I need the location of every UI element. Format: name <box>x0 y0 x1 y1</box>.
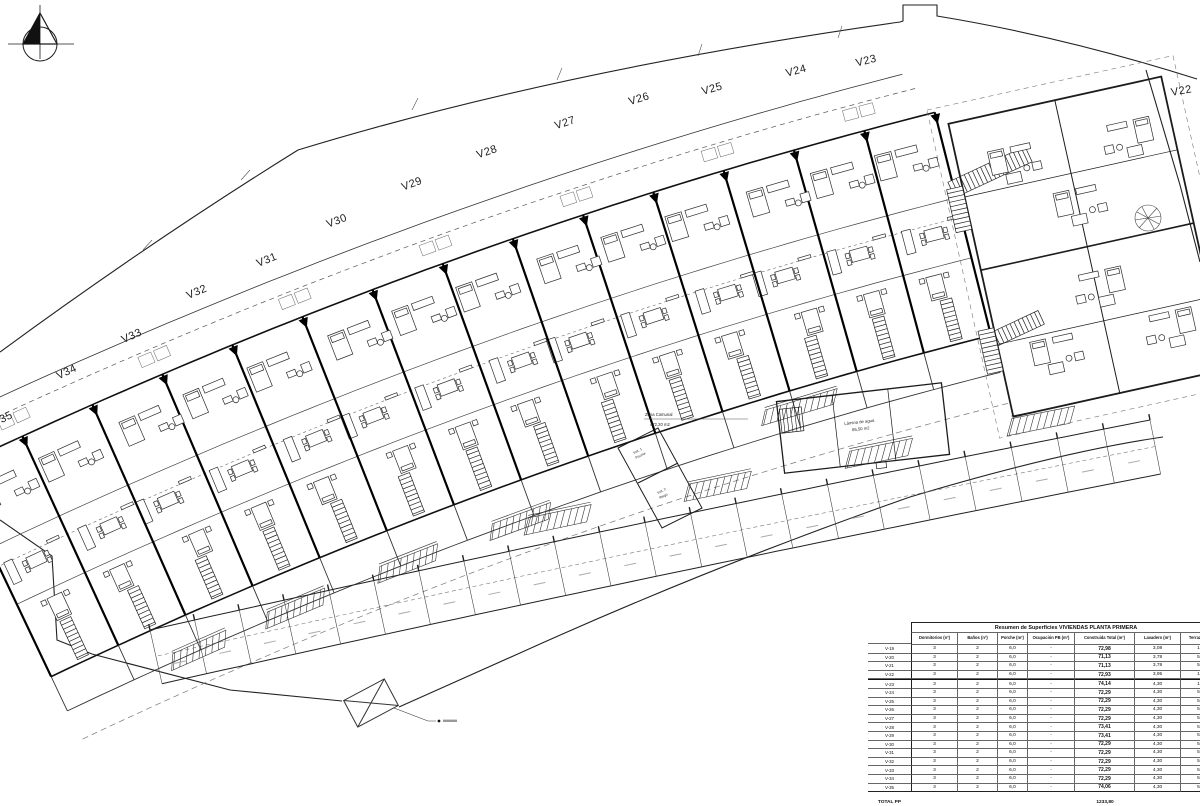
table-cell-dorm: 3 <box>911 749 958 758</box>
table-cell-porche: 6,0 <box>998 741 1028 750</box>
table-cell-banos: 2 <box>958 654 998 663</box>
table-title: Resumen de Superficies VIVIENDAS PLANTA … <box>911 622 1200 632</box>
unit-label-v33: V33 <box>120 326 144 346</box>
table-cell-lavadero: 3,78 <box>1135 662 1181 671</box>
table-cell-porche: 6,0 <box>998 689 1028 698</box>
table-cell-dorm: 3 <box>911 758 958 767</box>
table-cell-construida: 72,98 <box>1075 645 1135 654</box>
table-cell-banos: 2 <box>958 671 998 680</box>
row-unit-id: V-24 <box>868 689 911 698</box>
table-cell-terraza: 5,1 <box>1181 698 1200 707</box>
table-cell-dorm: 3 <box>911 645 958 654</box>
unit-label-v22: V22 <box>1170 83 1193 98</box>
table-cell-lavadero: 4,30 <box>1135 758 1181 767</box>
table-cell-ocupacion: - <box>1028 732 1075 741</box>
table-cell-lavadero: 4,30 <box>1135 679 1181 689</box>
table-cell-terraza: 10, <box>1181 645 1200 654</box>
table-cell-construida: 71,13 <box>1075 662 1135 671</box>
table-cell-lavadero: 3,78 <box>1135 654 1181 663</box>
col-header: Ocupación PB (m²) <box>1028 632 1075 645</box>
unit-label-v27: V27 <box>553 114 577 132</box>
row-unit-id: V-20 <box>868 654 911 663</box>
unit-label-v31: V31 <box>255 251 279 270</box>
row-unit-id: V-34 <box>868 775 911 784</box>
table-cell-dorm: 3 <box>911 679 958 689</box>
table-cell-lavadero: 3,08 <box>1135 645 1181 654</box>
table-cell-terraza: 5,1 <box>1181 715 1200 724</box>
table-cell-lavadero: 4,30 <box>1135 741 1181 750</box>
row-unit-id: V-19 <box>868 645 911 654</box>
table-cell-banos: 2 <box>958 689 998 698</box>
table-cell-ocupacion: - <box>1028 679 1075 689</box>
row-unit-id: V-32 <box>868 758 911 767</box>
table-cell-construida: 71,13 <box>1075 654 1135 663</box>
table-cell-construida: 72,93 <box>1075 671 1135 680</box>
table-cell-terraza: 5,1 <box>1181 775 1200 784</box>
table-cell-dorm: 3 <box>911 732 958 741</box>
surface-summary-table: Resumen de Superficies VIVIENDAS PLANTA … <box>868 622 1200 806</box>
row-unit-id: V-31 <box>868 749 911 758</box>
table-cell-porche: 6,0 <box>998 698 1028 707</box>
table-cell-ocupacion: - <box>1028 654 1075 663</box>
table-cell-dorm: 3 <box>911 766 958 775</box>
table-cell-banos: 2 <box>958 662 998 671</box>
table-cell-terraza: 10, <box>1181 671 1200 680</box>
col-header: Terraza (m²) <box>1181 632 1200 645</box>
table-cell-ocupacion: - <box>1028 741 1075 750</box>
table-cell-terraza: 5,1 <box>1181 784 1200 793</box>
table-cell-terraza: 5,1 <box>1181 723 1200 732</box>
zona-comunal-text: Zona Comunal <box>645 412 673 417</box>
table-cell-dorm: 3 <box>911 706 958 715</box>
row-unit-id: V-27 <box>868 715 911 724</box>
table-cell-lavadero: 4,30 <box>1135 732 1181 741</box>
table-cell-banos: 2 <box>958 723 998 732</box>
table-cell-terraza: 5,1 <box>1181 749 1200 758</box>
table-cell-construida: 74,06 <box>1075 784 1135 793</box>
row-unit-id: V-21 <box>868 662 911 671</box>
zona-comunal-area: 472,20 m2 <box>650 422 670 427</box>
table-cell-porche: 6,0 <box>998 679 1028 689</box>
table-cell-ocupacion: - <box>1028 706 1075 715</box>
unit-label-v24: V24 <box>784 63 807 80</box>
table-cell-porche: 6,0 <box>998 715 1028 724</box>
table-cell-dorm: 3 <box>911 784 958 793</box>
unit-label-v25: V25 <box>700 80 724 97</box>
table-cell-construida: 72,29 <box>1075 766 1135 775</box>
row-unit-id: V-23 <box>868 679 911 689</box>
row-unit-id: V-35 <box>868 784 911 793</box>
table-cell-dorm: 3 <box>911 775 958 784</box>
table-cell-porche: 6,0 <box>998 723 1028 732</box>
unit-col-header-blank <box>868 632 911 644</box>
table-cell-dorm: 3 <box>911 741 958 750</box>
table-cell-construida: 72,29 <box>1075 715 1135 724</box>
table-cell-ocupacion: - <box>1028 784 1075 793</box>
table-corner-blank <box>868 622 911 630</box>
table-cell-porche: 6,0 <box>998 775 1028 784</box>
table-cell-dorm: 3 <box>911 698 958 707</box>
total-value: 1233,80 <box>1075 798 1135 806</box>
table-cell-porche: 6,0 <box>998 766 1028 775</box>
unit-label-v23: V23 <box>855 53 878 70</box>
table-cell-construida: 73,41 <box>1075 723 1135 732</box>
unit-label-v29: V29 <box>400 175 424 193</box>
table-cell-dorm: 3 <box>911 723 958 732</box>
table-cell-lavadero: 3,95 <box>1135 671 1181 680</box>
col-header: Construida Total (m²) <box>1075 632 1135 645</box>
table-cell-lavadero: 4,30 <box>1135 706 1181 715</box>
table-cell-construida: 72,29 <box>1075 749 1135 758</box>
table-cell-porche: 6,0 <box>998 706 1028 715</box>
table-cell-dorm: 3 <box>911 662 958 671</box>
total-label: TOTAL PP <box>868 798 911 806</box>
table-cell-terraza: 12, <box>1181 679 1200 689</box>
table-cell-construida: 72,29 <box>1075 706 1135 715</box>
table-cell-lavadero: 4,30 <box>1135 766 1181 775</box>
table-cell-banos: 2 <box>958 749 998 758</box>
table-cell-construida: 74,14 <box>1075 679 1135 689</box>
table-cell-banos: 2 <box>958 706 998 715</box>
tree-symbol <box>1135 205 1161 231</box>
table-cell-porche: 6,0 <box>998 758 1028 767</box>
table-cell-porche: 6,0 <box>998 662 1028 671</box>
row-unit-id: V-30 <box>868 741 911 750</box>
table-cell-terraza: 5,1 <box>1181 654 1200 663</box>
table-cell-construida: 72,29 <box>1075 698 1135 707</box>
table-total-row: TOTAL PP 1233,80 <box>868 798 1200 806</box>
table-cell-ocupacion: - <box>1028 749 1075 758</box>
table-cell-lavadero: 4,30 <box>1135 775 1181 784</box>
table-cell-ocupacion: - <box>1028 698 1075 707</box>
table-cell-banos: 2 <box>958 775 998 784</box>
pool-area-label: 85,50 m2 <box>852 425 871 432</box>
row-unit-id: V-33 <box>868 766 911 775</box>
pool-label: Lámina de agua <box>844 418 875 426</box>
table-cell-ocupacion: - <box>1028 689 1075 698</box>
table-cell-banos: 2 <box>958 784 998 793</box>
table-cell-construida: 72,29 <box>1075 775 1135 784</box>
table-cell-terraza: 5,1 <box>1181 689 1200 698</box>
table-cell-construida: 72,29 <box>1075 758 1135 767</box>
table-cell-ocupacion: - <box>1028 645 1075 654</box>
table-cell-dorm: 3 <box>911 689 958 698</box>
table-cell-lavadero: 4,30 <box>1135 689 1181 698</box>
table-cell-lavadero: 4,30 <box>1135 698 1181 707</box>
table-cell-banos: 2 <box>958 645 998 654</box>
table-cell-banos: 2 <box>958 715 998 724</box>
table-cell-ocupacion: - <box>1028 723 1075 732</box>
table-cell-porche: 6,0 <box>998 749 1028 758</box>
table-cell-construida: 73,41 <box>1075 732 1135 741</box>
table-cell-lavadero: 4,30 <box>1135 784 1181 793</box>
table-cell-banos: 2 <box>958 741 998 750</box>
table-cell-ocupacion: - <box>1028 766 1075 775</box>
table-cell-dorm: 3 <box>911 715 958 724</box>
table-cell-lavadero: 4,30 <box>1135 715 1181 724</box>
floorplan-sheet: { "plan": { "unit_labels": ["V22","V23",… <box>0 0 1200 800</box>
unit-label-v32: V32 <box>185 283 209 302</box>
table-cell-ocupacion: - <box>1028 775 1075 784</box>
north-arrow-icon <box>8 5 74 61</box>
table-cell-porche: 6,0 <box>998 654 1028 663</box>
table-cell-dorm: 3 <box>911 671 958 680</box>
col-header: Lavadero (m²) <box>1135 632 1181 645</box>
unit-label-v30: V30 <box>325 212 349 231</box>
table-cell-banos: 2 <box>958 766 998 775</box>
unit-label-v26: V26 <box>627 90 651 108</box>
table-cell-porche: 6,0 <box>998 671 1028 680</box>
table-cell-terraza: 5,1 <box>1181 741 1200 750</box>
table-cell-terraza: 5,1 <box>1181 758 1200 767</box>
col-header: Baños (nº) <box>958 632 998 645</box>
row-unit-id: V-26 <box>868 706 911 715</box>
table-cell-terraza: 5,1 <box>1181 732 1200 741</box>
table-cell-terraza: 5,1 <box>1181 662 1200 671</box>
table-cell-banos: 2 <box>958 698 998 707</box>
table-cell-construida: 72,29 <box>1075 689 1135 698</box>
table-cell-lavadero: 4,30 <box>1135 749 1181 758</box>
table-cell-ocupacion: - <box>1028 715 1075 724</box>
table-cell-ocupacion: - <box>1028 662 1075 671</box>
table-cell-dorm: 3 <box>911 654 958 663</box>
col-header: Porche (m²) <box>998 632 1028 645</box>
table-cell-banos: 2 <box>958 732 998 741</box>
row-unit-id: V-25 <box>868 698 911 707</box>
row-unit-id: V-28 <box>868 723 911 732</box>
table-cell-porche: 6,0 <box>998 645 1028 654</box>
table-cell-construida: 72,29 <box>1075 741 1135 750</box>
table-cell-porche: 6,0 <box>998 732 1028 741</box>
table-cell-terraza: 5,1 <box>1181 766 1200 775</box>
table-cell-porche: 6,0 <box>998 784 1028 793</box>
table-cell-banos: 2 <box>958 758 998 767</box>
table-cell-lavadero: 4,30 <box>1135 723 1181 732</box>
table-cell-terraza: 5,1 <box>1181 706 1200 715</box>
table-cell-ocupacion: - <box>1028 671 1075 680</box>
col-header: Dormitorios (nº) <box>911 632 958 645</box>
table-cell-banos: 2 <box>958 679 998 689</box>
service-box-marker <box>344 679 457 727</box>
table-cell-ocupacion: - <box>1028 758 1075 767</box>
row-unit-id: V-22 <box>868 671 911 680</box>
unit-label-v28: V28 <box>475 143 499 161</box>
unit-label-v34: V34 <box>55 362 79 382</box>
row-unit-id: V-29 <box>868 732 911 741</box>
